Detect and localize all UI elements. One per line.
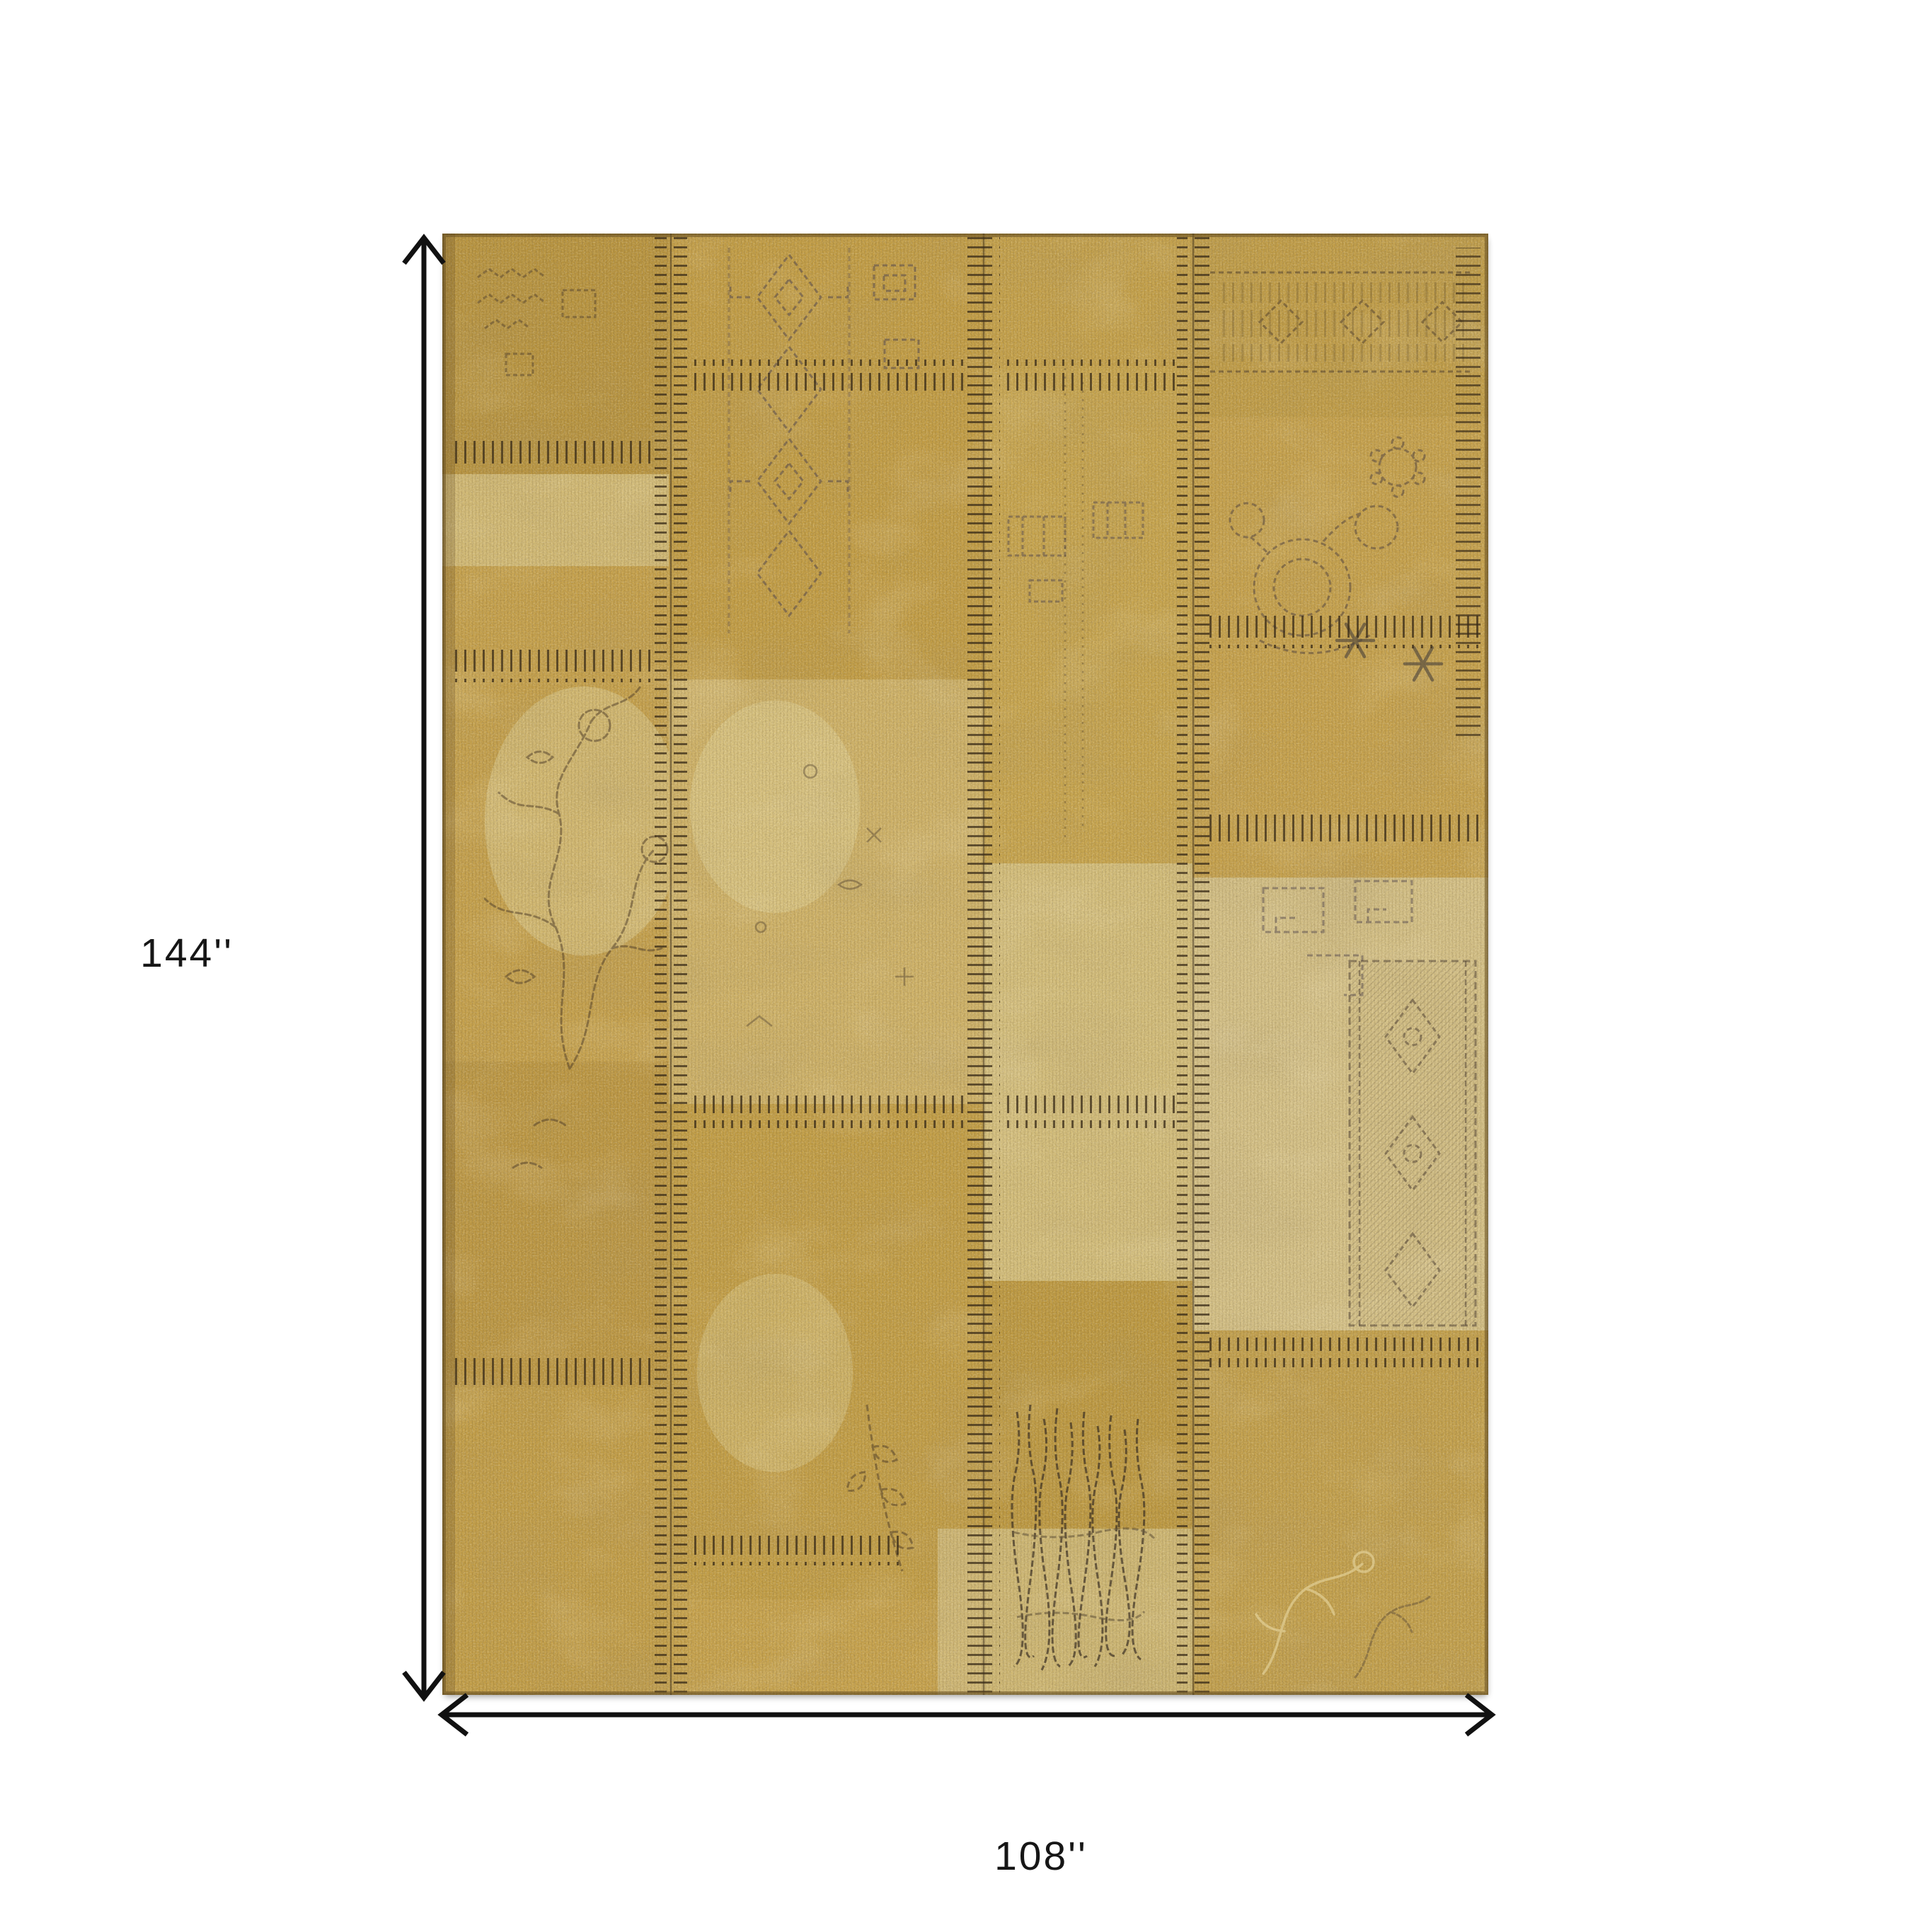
- rug-image: [442, 234, 1488, 1695]
- height-dimension-label: 144'': [106, 932, 234, 974]
- height-dimension-arrow: [404, 238, 444, 1698]
- width-dimension-arrow: [442, 1695, 1492, 1735]
- width-dimension-label: 108'': [970, 1835, 1112, 1878]
- product-diagram-canvas: 144'' 108'': [0, 0, 1932, 1932]
- rug-graphic: [442, 234, 1488, 1695]
